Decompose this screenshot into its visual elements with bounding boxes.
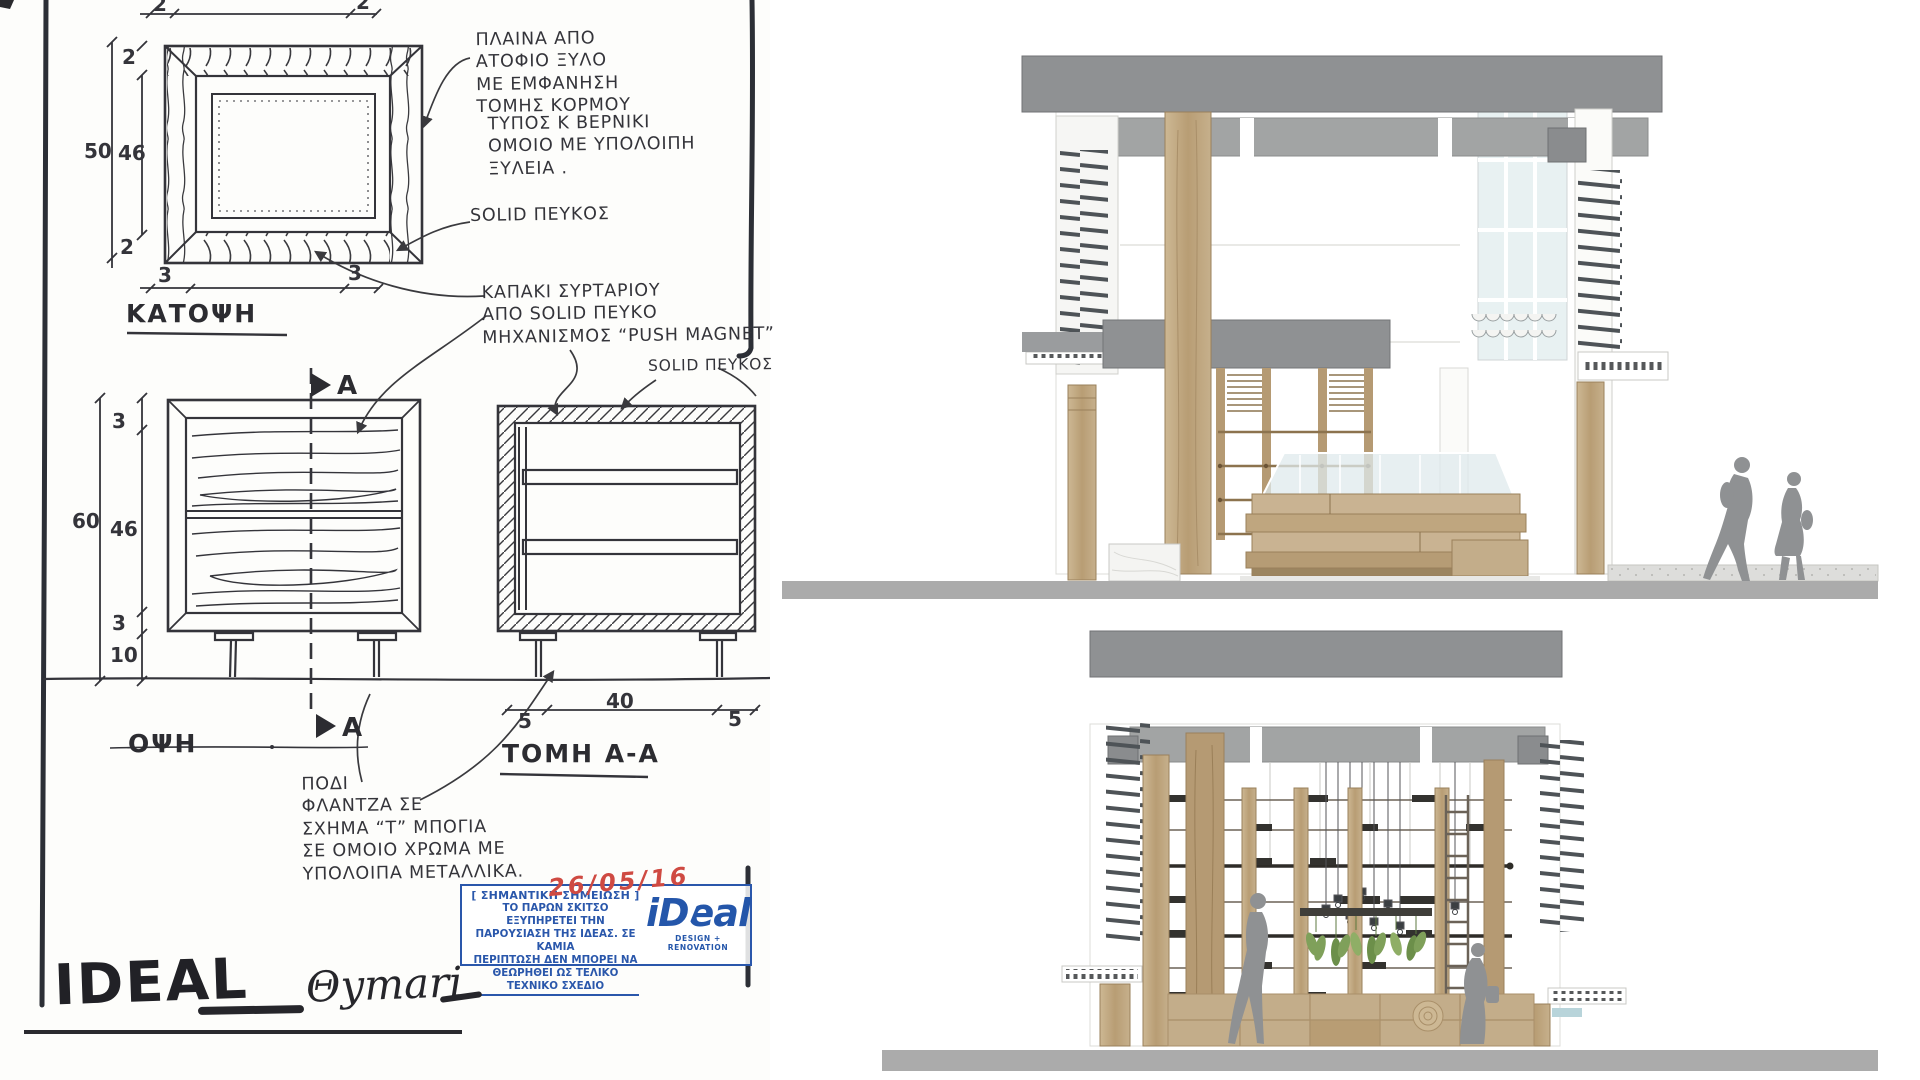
dim-sect-right: 5 — [728, 707, 742, 731]
glass-block — [1552, 1008, 1582, 1017]
dim-elev-bottom: 3 — [112, 611, 126, 635]
marble-base — [1109, 544, 1180, 581]
pedestrian-figures — [1703, 457, 1813, 581]
wood-post-lower-left — [1068, 385, 1096, 580]
dim-elev-top: 3 — [112, 409, 126, 433]
dim-plan-bottom-right: 3 — [348, 261, 362, 285]
roof-slab — [1022, 56, 1662, 112]
dim-plan-side-total: 50 — [84, 139, 112, 163]
stamp-underline — [472, 994, 638, 996]
stamp-body: ΤΟ ΠΑΡΩΝ ΣΚΙΤΣΟ ΕΞΥΠΗΡΕΤΕΙ ΤΗΝ ΠΑΡΟΥΣΙΑΣ… — [467, 902, 644, 993]
section-title: ΤΟΜΗ Α-Α — [502, 739, 660, 768]
signature-project-name: Θymari — [305, 957, 463, 1011]
dim-plan-side-top: 2 — [122, 45, 136, 69]
drawing-canvas: 2 2 2 50 46 2 3 3 ΚΑΤΟΨΗ 3 60 46 3 10 A … — [0, 0, 1920, 1080]
wood-column-tall — [1165, 112, 1211, 574]
wood-counter — [1246, 494, 1528, 576]
annotation-solid-pine-1: SOLID ΠΕΥΚΟΣ — [470, 203, 610, 227]
annotation-sides: ΠΛΑΙΝΑ ΑΠΟ ΑΤΟΦΙΟ ΞΥΛΟ ΜΕ ΕΜΦΑΝΗΣΗ ΤΟΜΗΣ… — [475, 27, 631, 119]
architectural-sheet: 2 2 2 50 46 2 3 3 ΚΑΤΟΨΗ 3 60 46 3 10 A … — [0, 0, 1920, 1080]
section-marker-top: A — [337, 371, 357, 401]
dim-plan-top-left: 2 — [153, 0, 167, 16]
ground-bar-bottom-render — [882, 1050, 1878, 1071]
dim-plan-side-bottom: 2 — [120, 235, 134, 259]
annotation-varnish: ΤΥΠΟΣ Κ ΒΕΡΝΙΚΙ ΟΜΟΙΟ ΜΕ ΥΠΟΛΟΙΠΗ ΞΥΛΕΙΑ… — [488, 111, 696, 181]
render-bottom-section — [882, 631, 1878, 1071]
ground-bar-top-render — [782, 581, 1878, 599]
section-marker-bottom: A — [342, 713, 362, 743]
plan-title: ΚΑΤΟΨΗ — [126, 299, 257, 328]
annotation-solid-pine-2: SOLID ΠΕΥΚΟΣ — [648, 355, 773, 377]
logo-tagline: DESIGN + RENOVATION — [646, 934, 750, 952]
render-top-elevation — [782, 56, 1878, 599]
stamp-logo-block: iDeal DESIGN + RENOVATION — [646, 886, 750, 964]
dim-plan-top-right: 2 — [356, 0, 370, 14]
dim-elev-inner: 46 — [110, 517, 138, 541]
signature-rule — [24, 1030, 462, 1034]
annotation-leg: ΠΟΔΙ ΦΛΑΝΤΖΑ ΣΕ ΣΧΗΜΑ “Τ” ΜΠΟΓΙΑ ΣΕ ΟΜΟΙ… — [301, 770, 533, 885]
dim-elev-total: 60 — [72, 509, 100, 533]
elevation-title: ΟΨΗ — [128, 729, 197, 758]
dim-sect-middle: 40 — [606, 689, 634, 713]
louver-panel-right-bottom — [1540, 740, 1584, 932]
louver-panel-right — [1578, 170, 1622, 358]
annotation-drawer-lid: ΚΑΠΑΚΙ ΣΥΡΤΑΡΙΟΥ ΑΠΟ SOLID ΠΕΥΚΟ ΜΗΧΑΝΙΣ… — [482, 278, 783, 349]
dim-plan-bottom-left: 3 — [158, 263, 172, 287]
roof-slab-bottom — [1090, 631, 1562, 677]
right-column-cap — [1548, 128, 1586, 162]
fascia-extension — [1022, 332, 1103, 352]
dim-sect-left: 5 — [518, 709, 532, 733]
wood-pilaster-left — [1100, 984, 1130, 1046]
dim-elev-legs: 10 — [110, 643, 138, 667]
fascia-band — [1103, 320, 1390, 368]
wood-post-lower-right — [1577, 382, 1604, 574]
dim-plan-side-inner: 46 — [118, 141, 146, 165]
